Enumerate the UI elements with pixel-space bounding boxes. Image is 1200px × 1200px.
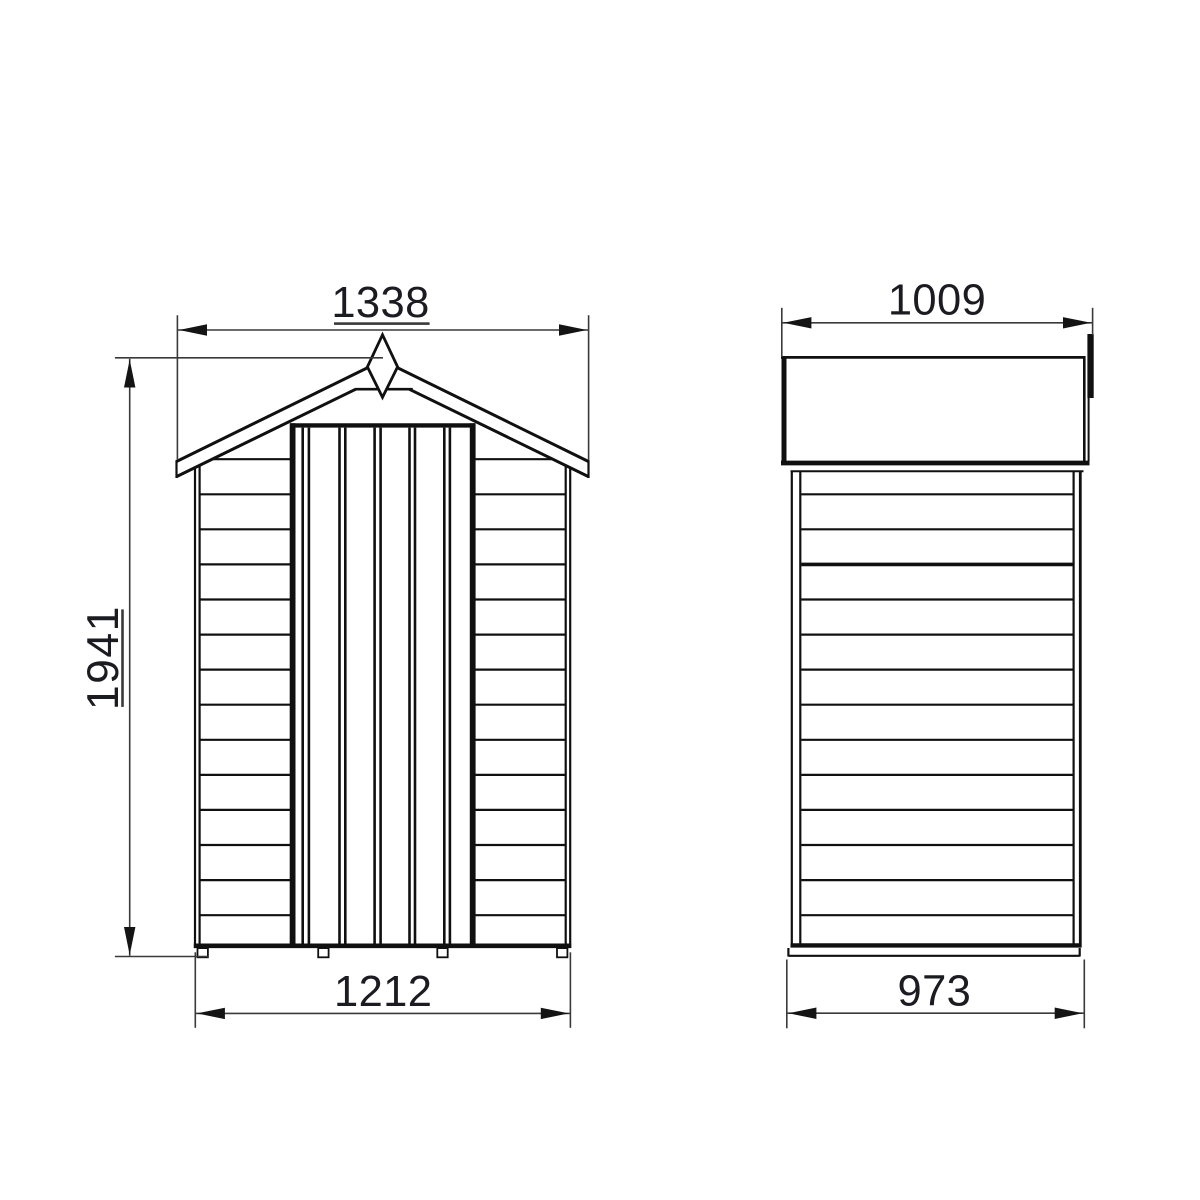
svg-text:1009: 1009 xyxy=(888,277,986,325)
svg-text:973: 973 xyxy=(898,967,972,1015)
svg-text:1338: 1338 xyxy=(331,279,429,327)
svg-text:1212: 1212 xyxy=(334,968,432,1016)
svg-text:1941: 1941 xyxy=(79,605,128,710)
